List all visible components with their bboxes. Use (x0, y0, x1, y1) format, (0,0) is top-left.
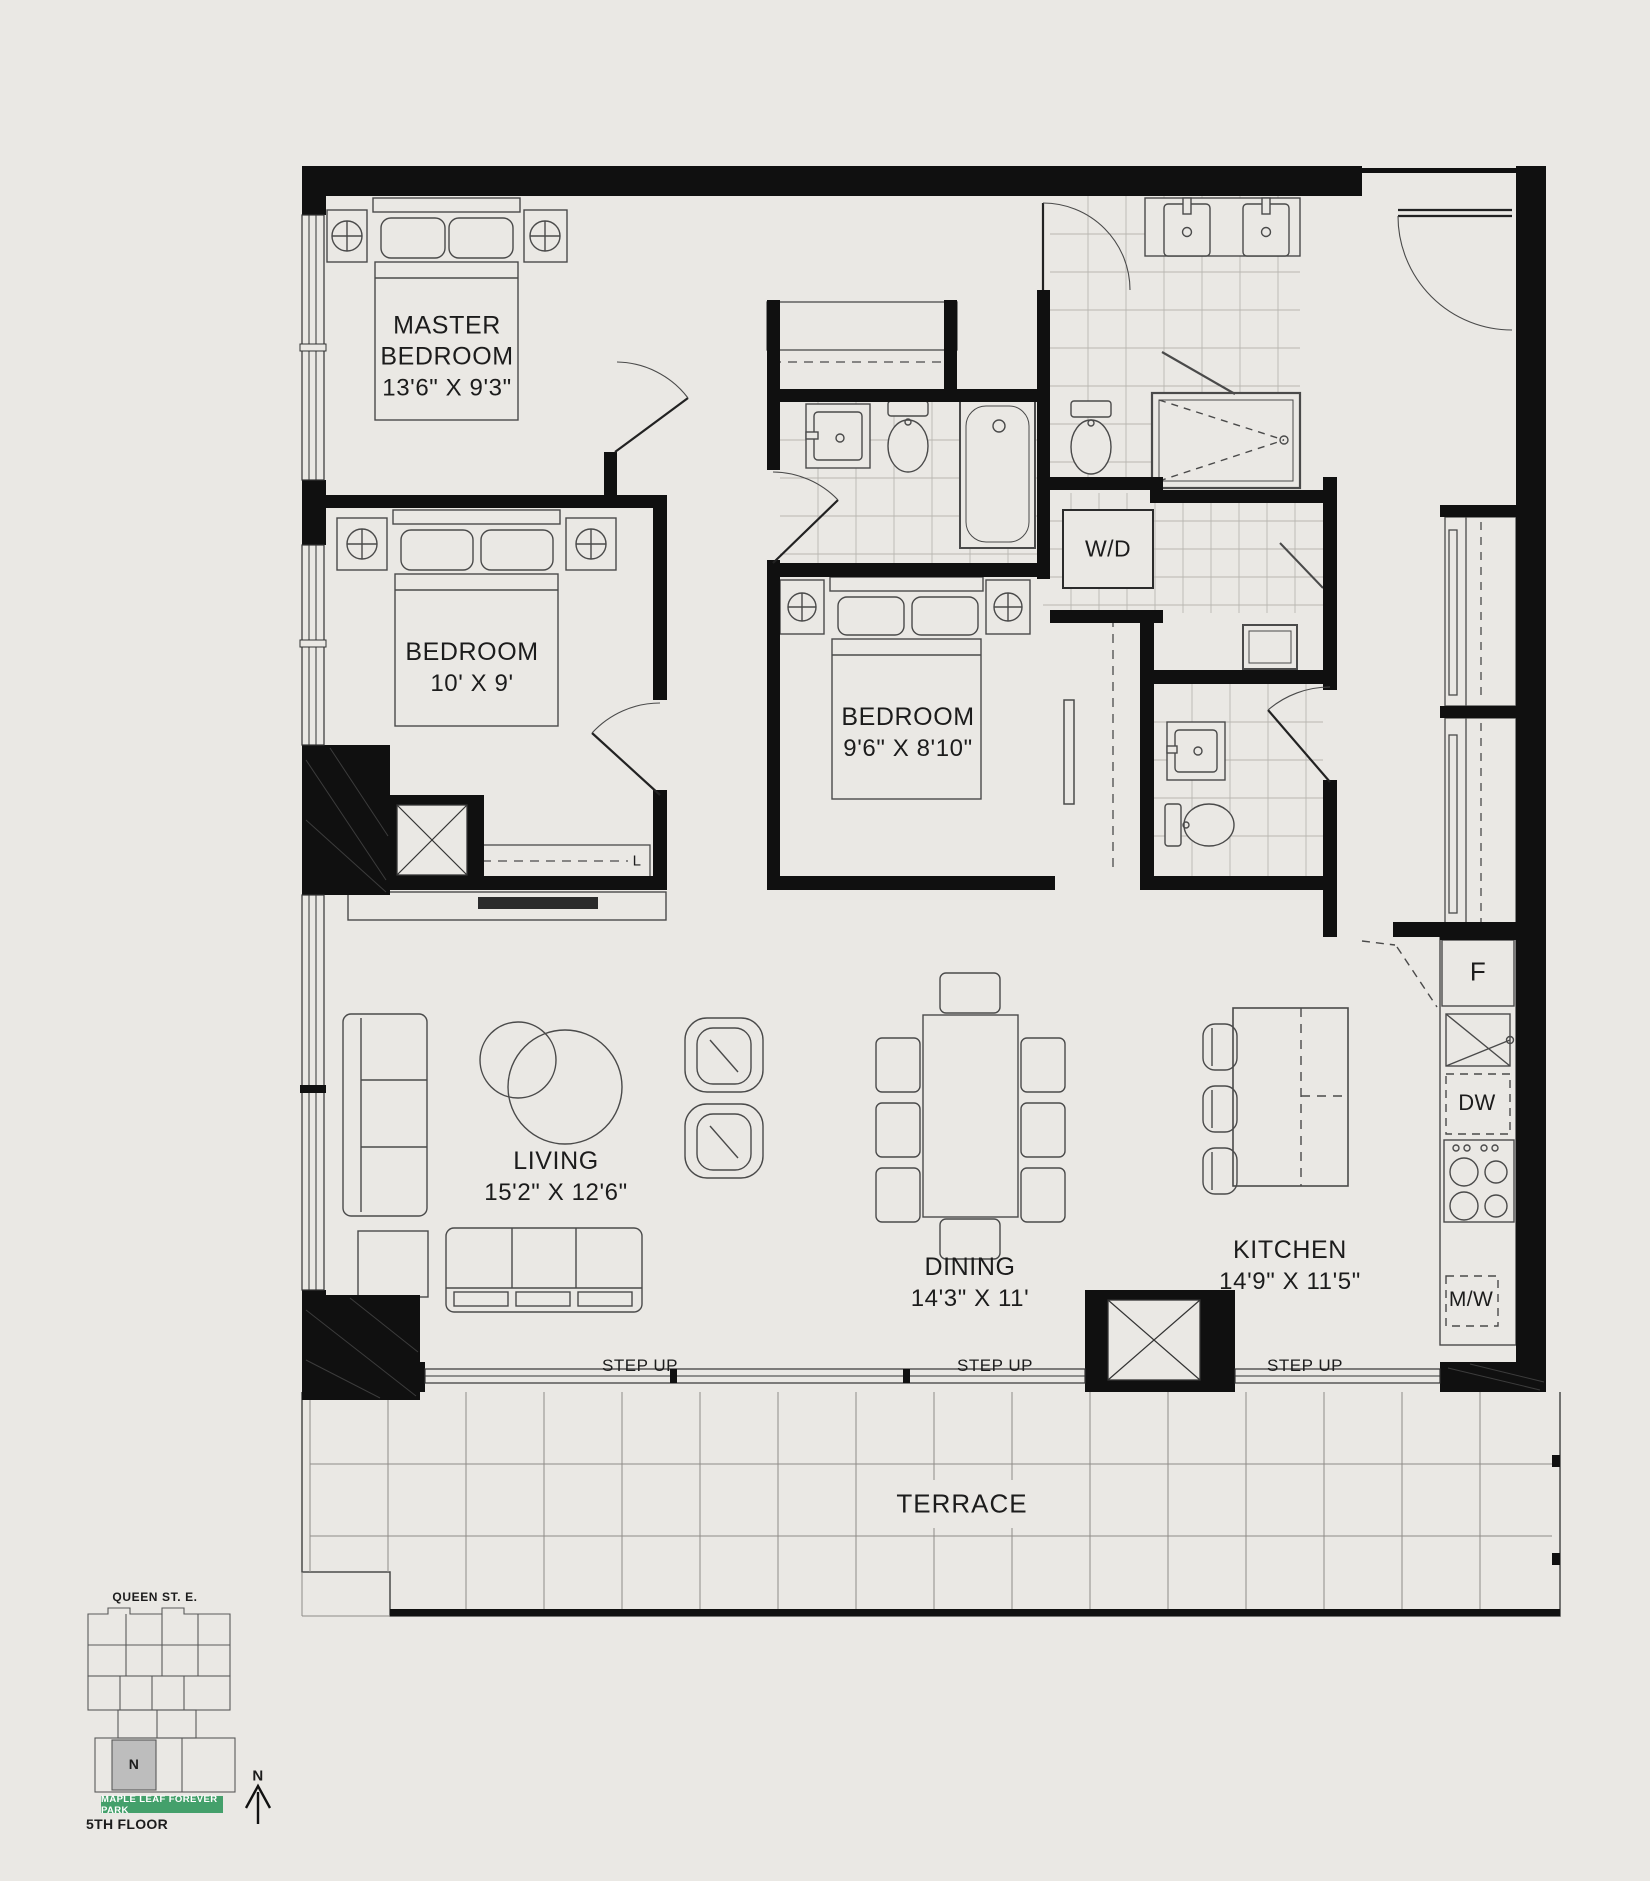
bar-stool (1203, 1086, 1237, 1132)
bathroom2 (1165, 625, 1297, 846)
room-label-terrace: TERRACE (896, 1489, 1027, 1520)
armchair (685, 1104, 763, 1178)
fridge-label: F (1470, 957, 1486, 988)
door-leaf (1064, 700, 1074, 804)
room-dims: 14'3" X 11' (860, 1283, 1080, 1314)
kitchen-island (1203, 1008, 1348, 1194)
floorplan-page: MASTER BEDROOM 13'6" X 9'3" BEDROOM 10' … (0, 0, 1650, 1881)
bed-pillow (838, 597, 904, 635)
sofa-2 (446, 1228, 642, 1312)
bar-stool (1203, 1148, 1237, 1194)
microwave-label: M/W (1449, 1288, 1493, 1312)
bed-pillow (449, 218, 513, 258)
window (300, 215, 326, 480)
dining-table (923, 1015, 1018, 1217)
shower-door (1162, 352, 1235, 394)
north-arrow-icon (246, 1786, 270, 1824)
toilet (1071, 401, 1111, 474)
step-up-label: STEP UP (957, 1356, 1033, 1376)
dining-chair (1021, 1038, 1065, 1092)
keyplan-park-banner: MAPLE LEAF FOREVER PARK (101, 1796, 223, 1813)
side-round-table (480, 1022, 556, 1098)
room-label-kitchen: KITCHEN 14'9" X 11'5" (1180, 1235, 1400, 1297)
bed-pillow (912, 597, 978, 635)
room-label-dining: DINING 14'3" X 11' (860, 1252, 1080, 1314)
bathtub (960, 400, 1035, 548)
right-wall (1516, 166, 1546, 1392)
bedroom2-door-leaf (592, 733, 660, 795)
north-label: N (252, 1768, 263, 1785)
room-label-bedroom-3: BEDROOM 9'6" X 8'10" (808, 702, 1008, 764)
washer-dryer-label: W/D (1085, 536, 1131, 563)
room-name: BEDROOM (382, 637, 562, 668)
bar-stool (1203, 1024, 1237, 1070)
dining-set (876, 973, 1065, 1259)
dishwasher-label: DW (1458, 1090, 1495, 1116)
room-name: MASTER BEDROOM (357, 311, 537, 373)
room-name: BEDROOM (808, 702, 1008, 733)
step-up-label: STEP UP (602, 1356, 678, 1376)
master-door-leaf (615, 398, 688, 452)
room-dims: 15'2" X 12'6" (446, 1177, 666, 1208)
ensuite-bathroom (1071, 198, 1300, 488)
room-name: LIVING (446, 1146, 666, 1177)
bed-pillow (381, 218, 445, 258)
dining-chair (940, 973, 1000, 1013)
keyplan-unit-label: N (129, 1756, 140, 1772)
keyplan-floor-label: 5TH FLOOR (86, 1816, 168, 1832)
dining-chair (876, 1038, 920, 1092)
toilet (1165, 804, 1234, 846)
room-dims: 10' X 9' (382, 668, 562, 699)
room-name: KITCHEN (1180, 1235, 1400, 1266)
room-dims: 14'9" X 11'5" (1180, 1266, 1400, 1297)
armchair (685, 1018, 763, 1092)
bed-pillow (481, 530, 553, 570)
dining-chair (1021, 1103, 1065, 1157)
keyplan-street-label: QUEEN ST. E. (112, 1590, 197, 1604)
bed-pillow (401, 530, 473, 570)
bed-headboard (830, 577, 983, 591)
floor-plan-drawing (0, 0, 1650, 1881)
key-plan (88, 1608, 270, 1824)
step-up-label: STEP UP (1267, 1356, 1343, 1376)
bedroom3-furniture (780, 577, 1030, 799)
niche-cabinet (1243, 625, 1297, 669)
bathroom2-door-leaf (1268, 710, 1330, 782)
toilet (888, 401, 928, 472)
room-label-bedroom-2: BEDROOM 10' X 9' (382, 637, 562, 699)
dining-chair (1021, 1168, 1065, 1222)
room-dims: 9'6" X 8'10" (808, 733, 1008, 764)
window (300, 545, 326, 745)
foyer-closets (1280, 517, 1516, 928)
dining-chair (876, 1103, 920, 1157)
dining-chair (876, 1168, 920, 1222)
coffee-table (508, 1030, 622, 1144)
window (300, 895, 326, 1290)
tv (478, 897, 598, 909)
linen-closet-label: L (633, 853, 642, 870)
doors (592, 203, 1512, 795)
room-name: DINING (860, 1252, 1080, 1283)
room-label-master-bedroom: MASTER BEDROOM 13'6" X 9'3" (357, 311, 537, 404)
bed-headboard (373, 198, 520, 212)
sliding-door (1280, 543, 1323, 588)
top-wall (302, 166, 1362, 196)
room-label-living: LIVING 15'2" X 12'6" (446, 1146, 666, 1208)
main-bathroom (806, 400, 1035, 548)
side-table (358, 1231, 428, 1297)
kitchen-counter (1440, 937, 1516, 1345)
bed-headboard (393, 510, 560, 524)
room-dims: 13'6" X 9'3" (357, 373, 537, 404)
sofa (343, 1014, 427, 1216)
